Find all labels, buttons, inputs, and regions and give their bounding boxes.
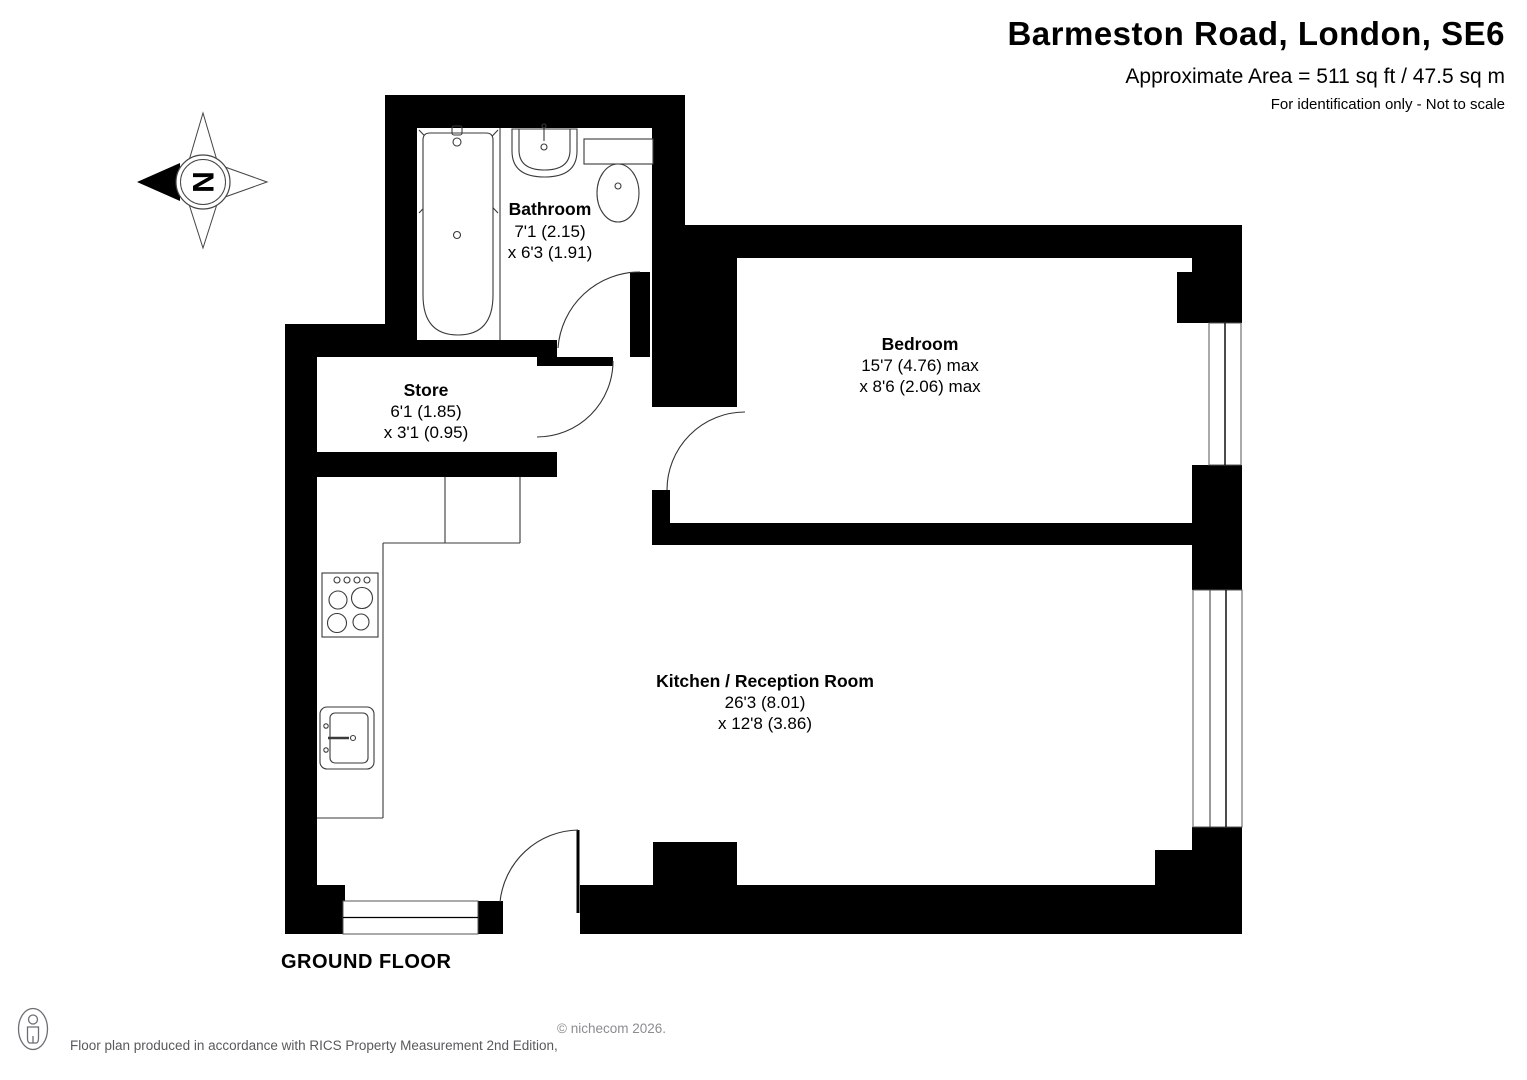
- ground-floor-label: GROUND FLOOR: [281, 951, 451, 974]
- store-label: Store 6'1 (1.85) x 3'1 (0.95): [384, 380, 469, 442]
- entrance-door-icon: [500, 830, 578, 913]
- store-dim2: x 3'1 (0.95): [384, 423, 469, 442]
- kitchen-sink-icon: [320, 707, 374, 769]
- bedroom-dim1: 15'7 (4.76) max: [861, 356, 979, 375]
- toilet-icon: [584, 139, 653, 222]
- footer-line-1: Floor plan produced in accordance with R…: [70, 1038, 561, 1054]
- kitchen-name: Kitchen / Reception Room: [656, 671, 874, 691]
- store-door-icon: [537, 357, 613, 437]
- approximate-area-text: Approximate Area = 511 sq ft / 47.5 sq m: [1007, 65, 1505, 88]
- compass-rose-icon: N: [137, 113, 267, 248]
- bedroom-name: Bedroom: [882, 334, 959, 354]
- compass-north-letter: N: [188, 171, 221, 193]
- bathroom-label: Bathroom 7'1 (2.15) x 6'3 (1.91): [508, 199, 593, 262]
- bathroom-door-icon: [558, 272, 650, 357]
- kitchen-fixtures: [317, 477, 520, 818]
- bedroom-label: Bedroom 15'7 (4.76) max x 8'6 (2.06) max: [859, 334, 981, 396]
- bathtub-icon: [419, 126, 498, 335]
- floorplan-drawing: N Bathroom 7'1 (2.15) x 6'3 (1.91) Store…: [0, 0, 1527, 1080]
- bathroom-dim1: 7'1 (2.15): [514, 222, 585, 241]
- footer-disclaimer: Floor plan produced in accordance with R…: [70, 1007, 561, 1080]
- page-title: Barmeston Road, London, SE6: [1007, 16, 1505, 52]
- floorplan-page: N Bathroom 7'1 (2.15) x 6'3 (1.91) Store…: [0, 0, 1527, 1080]
- kitchen-dim1: 26'3 (8.01): [725, 693, 806, 712]
- hob-icon: [322, 573, 378, 637]
- kitchen-dim2: x 12'8 (3.86): [718, 714, 812, 733]
- scale-disclaimer-text: For identification only - Not to scale: [1007, 97, 1505, 114]
- store-dim1: 6'1 (1.85): [390, 402, 461, 421]
- bathroom-name: Bathroom: [509, 199, 592, 219]
- bedroom-window-icon: [1209, 323, 1241, 465]
- front-window-icon: [343, 901, 478, 934]
- copyright-text: © nichecom 2026.: [557, 1021, 666, 1036]
- kitchen-window-icon: [1193, 590, 1242, 827]
- bedroom-door-icon: [667, 412, 745, 490]
- kitchen-label: Kitchen / Reception Room 26'3 (8.01) x 1…: [656, 671, 874, 733]
- windows: [343, 323, 1242, 934]
- store-name: Store: [404, 380, 449, 400]
- bathroom-sink-icon: [512, 124, 577, 177]
- compass-north-pointer: [137, 163, 180, 201]
- bedroom-dim2: x 8'6 (2.06) max: [859, 377, 981, 396]
- person-logo-icon: [19, 1009, 48, 1050]
- bathroom-dim2: x 6'3 (1.91): [508, 243, 593, 262]
- header: Barmeston Road, London, SE6 Approximate …: [1007, 16, 1505, 114]
